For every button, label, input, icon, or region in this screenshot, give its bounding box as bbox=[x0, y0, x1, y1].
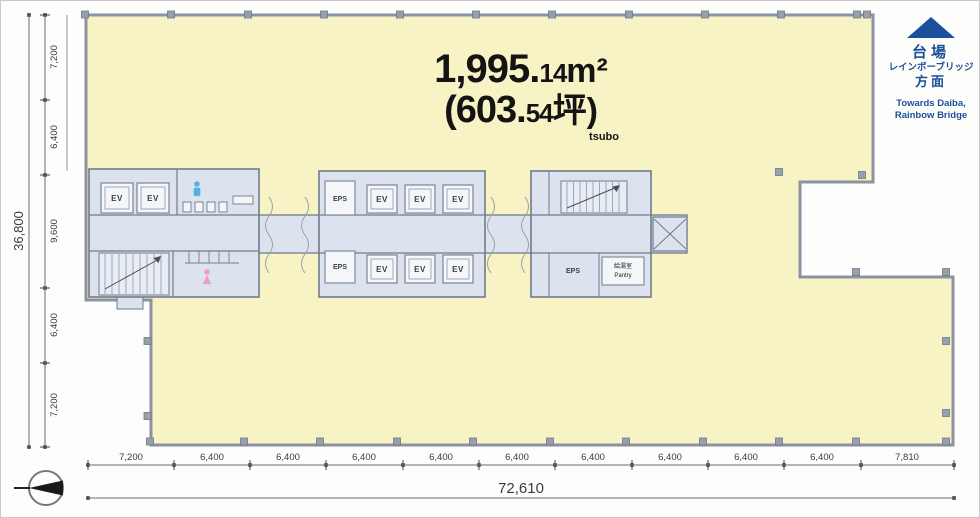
north-arrow bbox=[14, 471, 63, 505]
pantry-label-en: Pantry bbox=[614, 273, 631, 279]
dim-bottom-seg: 6,400 bbox=[429, 452, 453, 463]
dim-bottom-seg: 7,200 bbox=[119, 452, 143, 463]
elevator-room: EV bbox=[443, 185, 473, 213]
elevator-room: EV bbox=[101, 183, 133, 213]
mens-restroom-icon bbox=[194, 181, 201, 196]
core-block-left: EV EV bbox=[89, 169, 259, 297]
elevator-room: EV bbox=[405, 255, 435, 283]
direction-jp-homen: 方面 bbox=[883, 74, 979, 90]
ev-label: EV bbox=[111, 194, 123, 203]
dim-bottom-seg: 6,400 bbox=[658, 452, 682, 463]
core-vestibule-right bbox=[653, 217, 687, 251]
dim-bottom-seg: 6,400 bbox=[352, 452, 376, 463]
pantry-label-jp: 給湯室 bbox=[614, 262, 632, 270]
core-block-middle: EPS EV EV EV EPS EV EV bbox=[319, 171, 485, 297]
dim-bottom-seg: 6,400 bbox=[581, 452, 605, 463]
ev-label: EV bbox=[147, 194, 159, 203]
core-protrusion-left bbox=[117, 297, 143, 309]
ev-label: EV bbox=[414, 265, 426, 274]
dim-left-seg: 7,200 bbox=[49, 393, 60, 417]
dim-bottom-seg: 6,400 bbox=[810, 452, 834, 463]
eps-label: EPS bbox=[333, 196, 347, 203]
pantry-room: 給湯室 Pantry bbox=[602, 257, 644, 285]
eps-room: EPS bbox=[325, 251, 355, 283]
area-title: 1,995.14m² (603.54坪) tsubo bbox=[331, 49, 711, 143]
dim-bottom-seg: 7,810 bbox=[895, 452, 919, 463]
core-block-right: EPS 給湯室 Pantry bbox=[531, 171, 651, 297]
area-square-meters: 1,995.14m² bbox=[331, 49, 711, 91]
tsubo-caption: tsubo bbox=[331, 132, 711, 143]
dim-left-seg: 6,400 bbox=[49, 313, 60, 337]
area-tsubo-value: (603. bbox=[444, 89, 526, 131]
stairs-left bbox=[99, 253, 169, 295]
elevator-room: EV bbox=[367, 255, 397, 283]
area-m2-unit: m² bbox=[566, 52, 608, 90]
direction-en-line1: Towards Daiba, bbox=[883, 98, 979, 111]
floor-plan-page: EV EV bbox=[0, 0, 980, 518]
ev-label: EV bbox=[414, 195, 426, 204]
eps-label: EPS bbox=[333, 264, 347, 271]
dim-left-seg: 9,600 bbox=[49, 219, 60, 243]
ev-label: EV bbox=[452, 195, 464, 204]
up-arrow-icon bbox=[907, 17, 955, 38]
eps-label: EPS bbox=[566, 268, 580, 275]
ev-label: EV bbox=[452, 265, 464, 274]
direction-sign: 台場 レインボーブリッジ 方面 Towards Daiba, Rainbow B… bbox=[883, 17, 979, 123]
elevator-room: EV bbox=[367, 185, 397, 213]
elevator-room: EV bbox=[137, 183, 169, 213]
elevator-room: EV bbox=[405, 185, 435, 213]
dim-bottom-seg: 6,400 bbox=[200, 452, 224, 463]
area-tsubo-unit: 坪) bbox=[553, 92, 598, 130]
direction-en-line2: Rainbow Bridge bbox=[883, 110, 979, 123]
dimension-left bbox=[29, 15, 45, 447]
dim-bottom-total: 72,610 bbox=[498, 480, 544, 497]
dim-bottom-seg: 6,400 bbox=[505, 452, 529, 463]
direction-jp-daiba: 台場 bbox=[883, 44, 979, 62]
eps-room: EPS bbox=[325, 181, 355, 215]
elevator-room: EV bbox=[443, 255, 473, 283]
dim-left-seg: 6,400 bbox=[49, 125, 60, 149]
area-tsubo: (603.54坪) bbox=[331, 91, 711, 131]
direction-jp-rainbowbridge: レインボーブリッジ bbox=[883, 62, 979, 74]
dim-left-seg: 7,200 bbox=[49, 45, 60, 69]
area-m2-value: 1,995. bbox=[434, 47, 539, 91]
dim-left-total: 36,800 bbox=[11, 211, 26, 251]
dim-bottom-seg: 6,400 bbox=[734, 452, 758, 463]
ev-label: EV bbox=[376, 265, 388, 274]
ev-label: EV bbox=[376, 195, 388, 204]
stairs-right bbox=[561, 181, 627, 213]
dim-bottom-seg: 6,400 bbox=[276, 452, 300, 463]
